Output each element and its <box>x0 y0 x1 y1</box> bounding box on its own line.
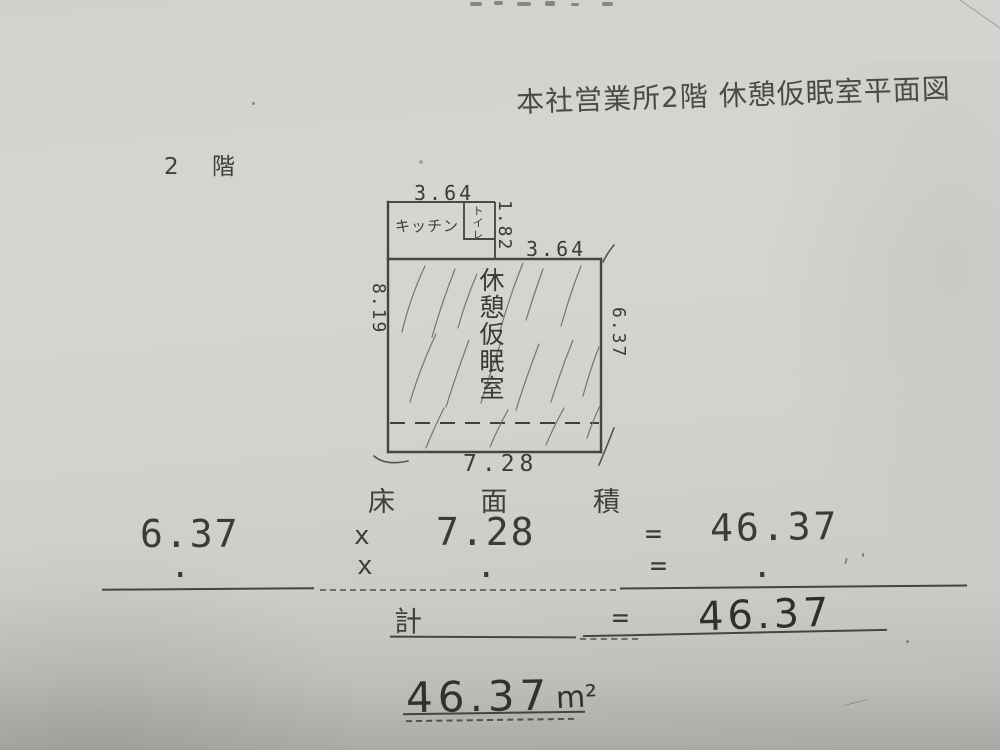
calc-row2-operand-b: . <box>476 546 496 586</box>
scan-shadow <box>0 590 1000 750</box>
paper-wrinkle <box>934 0 1000 40</box>
scan-artifact <box>602 2 613 6</box>
calc-row1-operator: x <box>354 521 370 551</box>
page-title: 本社営業所2階 休憩仮眠室平面図 <box>515 67 951 121</box>
scan-speck <box>252 102 255 105</box>
kitchen-label: キッチン <box>395 215 459 236</box>
scan-speck <box>906 640 909 643</box>
corner-tick <box>374 456 408 463</box>
scan-artifact <box>494 1 503 5</box>
room-label: 休憩仮眠室 <box>472 267 508 407</box>
scan-artifact <box>545 1 555 6</box>
calc-row1-equals: = <box>645 517 662 550</box>
calc-row1-result: 46.37 <box>710 504 840 550</box>
total-underline-dashes <box>580 638 638 640</box>
scan-shadow <box>760 60 1000 560</box>
dim-left: 8.19 <box>368 283 389 334</box>
corner-tick <box>603 245 614 262</box>
paper-wrinkle <box>843 699 868 706</box>
toilet-label: トイレ <box>469 205 485 251</box>
floor-label: 2 階 <box>164 147 248 181</box>
scan-speck <box>844 558 847 564</box>
dim-kitchen-top: 3.64 <box>414 181 474 205</box>
calc-row2-result: . <box>752 546 772 586</box>
calc-rule-right <box>620 584 967 589</box>
dim-bottom: 7.28 <box>463 451 538 477</box>
scan-artifact <box>571 3 579 6</box>
section-title-char: 床 <box>368 480 395 519</box>
total-equals: = <box>612 601 629 634</box>
section-title-char: 積 <box>593 480 620 519</box>
calc-row2-operator: x <box>357 551 373 581</box>
dim-right: 6.37 <box>608 307 629 358</box>
calc-row2-operand-a: . <box>170 546 190 586</box>
scan-artifact <box>517 2 531 6</box>
dim-main-top: 3.64 <box>526 237 586 261</box>
calc-rule-middle <box>320 589 616 591</box>
scan-speck <box>862 553 864 557</box>
calc-rule-left <box>102 587 314 590</box>
scan-speck <box>419 160 423 164</box>
dim-toilet-right: 1.82 <box>494 200 515 251</box>
scanned-floor-plan-page: 本社営業所2階 休憩仮眠室平面図 2 階 <box>0 0 1000 750</box>
total-label: 計 <box>394 600 422 640</box>
scan-artifact <box>470 2 482 6</box>
calc-row2-equals: = <box>650 549 667 582</box>
